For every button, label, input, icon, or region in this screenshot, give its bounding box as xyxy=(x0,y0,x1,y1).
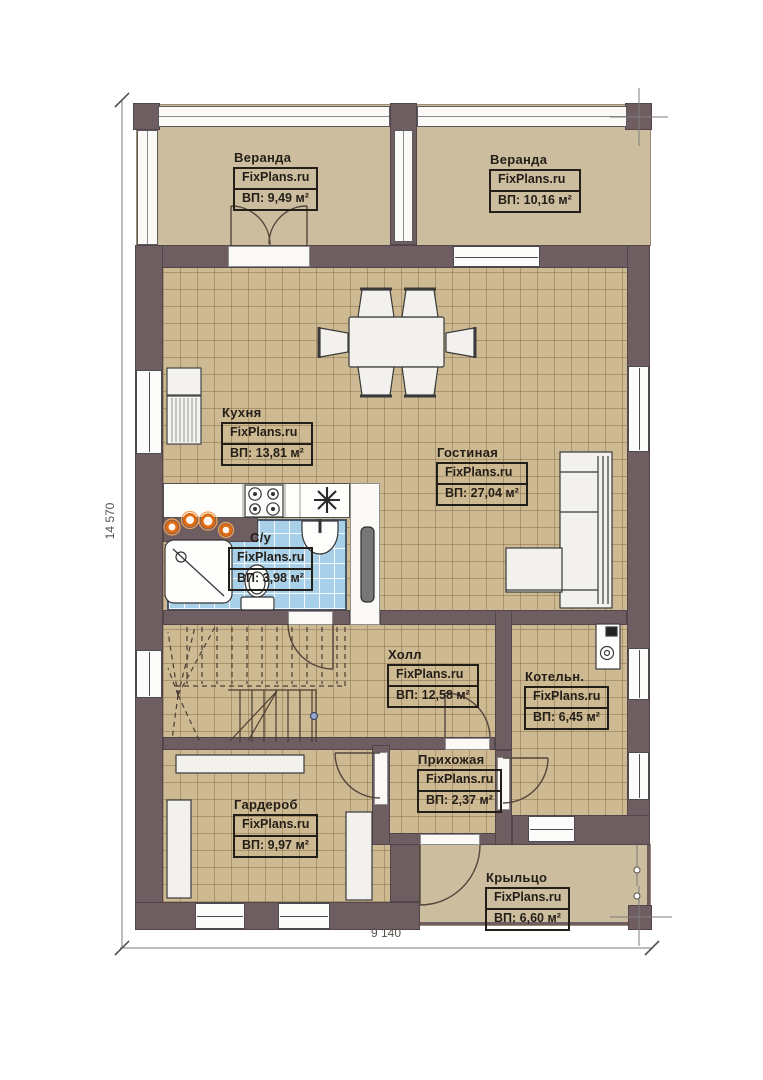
floor-plan: Веранда FixPlans.ru ВП: 9,49 м² Веранда … xyxy=(0,0,763,1080)
room-label-kitchen: Кухня FixPlans.ru ВП: 13,81 м² xyxy=(221,406,313,466)
post-top-right xyxy=(625,103,652,130)
room-info-box: FixPlans.ru ВП: 13,81 м² xyxy=(221,422,313,465)
room-area: ВП: 9,97 м² xyxy=(235,837,316,856)
window-hall-left xyxy=(136,650,162,698)
watermark: FixPlans.ru xyxy=(235,169,316,190)
watermark: FixPlans.ru xyxy=(526,688,607,709)
room-area: ВП: 13,81 м² xyxy=(223,445,311,464)
window-boiler-bottom xyxy=(528,816,575,842)
room-info-box: FixPlans.ru ВП: 12,58 м² xyxy=(387,664,479,707)
watermark: FixPlans.ru xyxy=(223,424,311,445)
room-area: ВП: 9,49 м² xyxy=(235,190,316,209)
window-wardrobe-2 xyxy=(278,903,330,929)
living-hall-passage xyxy=(350,483,380,625)
room-name: Гардероб xyxy=(234,798,318,812)
room-label-living-room: Гостиная FixPlans.ru ВП: 27,04 м² xyxy=(436,446,528,506)
bathroom-door-opening xyxy=(288,611,333,625)
room-info-box: FixPlans.ru ВП: 9,49 м² xyxy=(233,167,318,210)
room-area: ВП: 12,58 м² xyxy=(389,687,477,706)
dimension-width: 9 140 xyxy=(356,926,416,940)
window-boiler-right xyxy=(628,648,649,700)
room-info-box: FixPlans.ru ВП: 10,16 м² xyxy=(489,169,581,212)
room-info-box: FixPlans.ru ВП: 9,97 м² xyxy=(233,814,318,857)
room-label-veranda-right: Веранда FixPlans.ru ВП: 10,16 м² xyxy=(489,153,581,213)
room-label-hall: Холл FixPlans.ru ВП: 12,58 м² xyxy=(387,648,479,708)
room-area: ВП: 6,45 м² xyxy=(526,709,607,728)
room-name: Котельн. xyxy=(525,670,609,684)
veranda-left-railing xyxy=(158,106,390,127)
french-door-opening xyxy=(228,246,310,267)
window-wardrobe-1 xyxy=(195,903,245,929)
wall-left xyxy=(135,245,163,930)
room-name: Кухня xyxy=(222,406,313,420)
room-name: С/у xyxy=(250,531,313,545)
room-area: ВП: 27,04 м² xyxy=(438,485,526,504)
room-label-boiler-room: Котельн. FixPlans.ru ВП: 6,45 м² xyxy=(524,670,609,730)
room-name: Гостиная xyxy=(437,446,528,460)
room-label-entry: Прихожая FixPlans.ru ВП: 2,37 м² xyxy=(417,753,502,813)
watermark: FixPlans.ru xyxy=(389,666,477,687)
room-info-box: FixPlans.ru ВП: 2,37 м² xyxy=(417,769,502,812)
window-boiler-right-2 xyxy=(628,752,649,800)
front-door-opening xyxy=(420,834,480,845)
room-area: ВП: 6,60 м² xyxy=(487,910,568,929)
veranda-right-railing xyxy=(417,106,627,127)
watermark: FixPlans.ru xyxy=(230,549,311,570)
watermark: FixPlans.ru xyxy=(438,464,526,485)
room-label-wardrobe: Гардероб FixPlans.ru ВП: 9,97 м² xyxy=(233,798,318,858)
room-name: Холл xyxy=(388,648,479,662)
wall-hall-boiler xyxy=(495,610,512,750)
room-area: ВП: 10,16 м² xyxy=(491,192,579,211)
watermark: FixPlans.ru xyxy=(419,771,500,792)
room-info-box: FixPlans.ru ВП: 3,98 м² xyxy=(228,547,313,590)
window-living-right xyxy=(628,366,649,452)
post-top-left xyxy=(133,103,160,130)
window-kitchen-left xyxy=(136,370,162,454)
room-name: Крыльцо xyxy=(486,871,570,885)
watermark: FixPlans.ru xyxy=(487,889,568,910)
room-name: Веранда xyxy=(234,151,318,165)
room-name: Прихожая xyxy=(418,753,502,767)
wardrobe-door-opening xyxy=(374,752,388,805)
wall-top-main xyxy=(135,245,650,268)
room-name: Веранда xyxy=(490,153,581,167)
dimension-height: 14 570 xyxy=(103,491,117,551)
room-info-box: FixPlans.ru ВП: 6,60 м² xyxy=(485,887,570,930)
watermark: FixPlans.ru xyxy=(235,816,316,837)
room-info-box: FixPlans.ru ВП: 27,04 м² xyxy=(436,462,528,505)
veranda-left-side-window xyxy=(137,130,158,245)
veranda-divider-window xyxy=(394,130,413,242)
window-living-top xyxy=(453,246,540,267)
room-area: ВП: 3,98 м² xyxy=(230,570,311,589)
room-area: ВП: 2,37 м² xyxy=(419,792,500,811)
post-porch-column xyxy=(628,905,652,930)
room-info-box: FixPlans.ru ВП: 6,45 м² xyxy=(524,686,609,729)
room-label-porch: Крыльцо FixPlans.ru ВП: 6,60 м² xyxy=(485,871,570,931)
hall-entry-door-opening xyxy=(445,738,490,750)
room-label-veranda-left: Веранда FixPlans.ru ВП: 9,49 м² xyxy=(233,151,318,211)
room-label-bathroom: С/у FixPlans.ru ВП: 3,98 м² xyxy=(228,531,313,591)
watermark: FixPlans.ru xyxy=(491,171,579,192)
kitchen-counter xyxy=(163,483,350,518)
